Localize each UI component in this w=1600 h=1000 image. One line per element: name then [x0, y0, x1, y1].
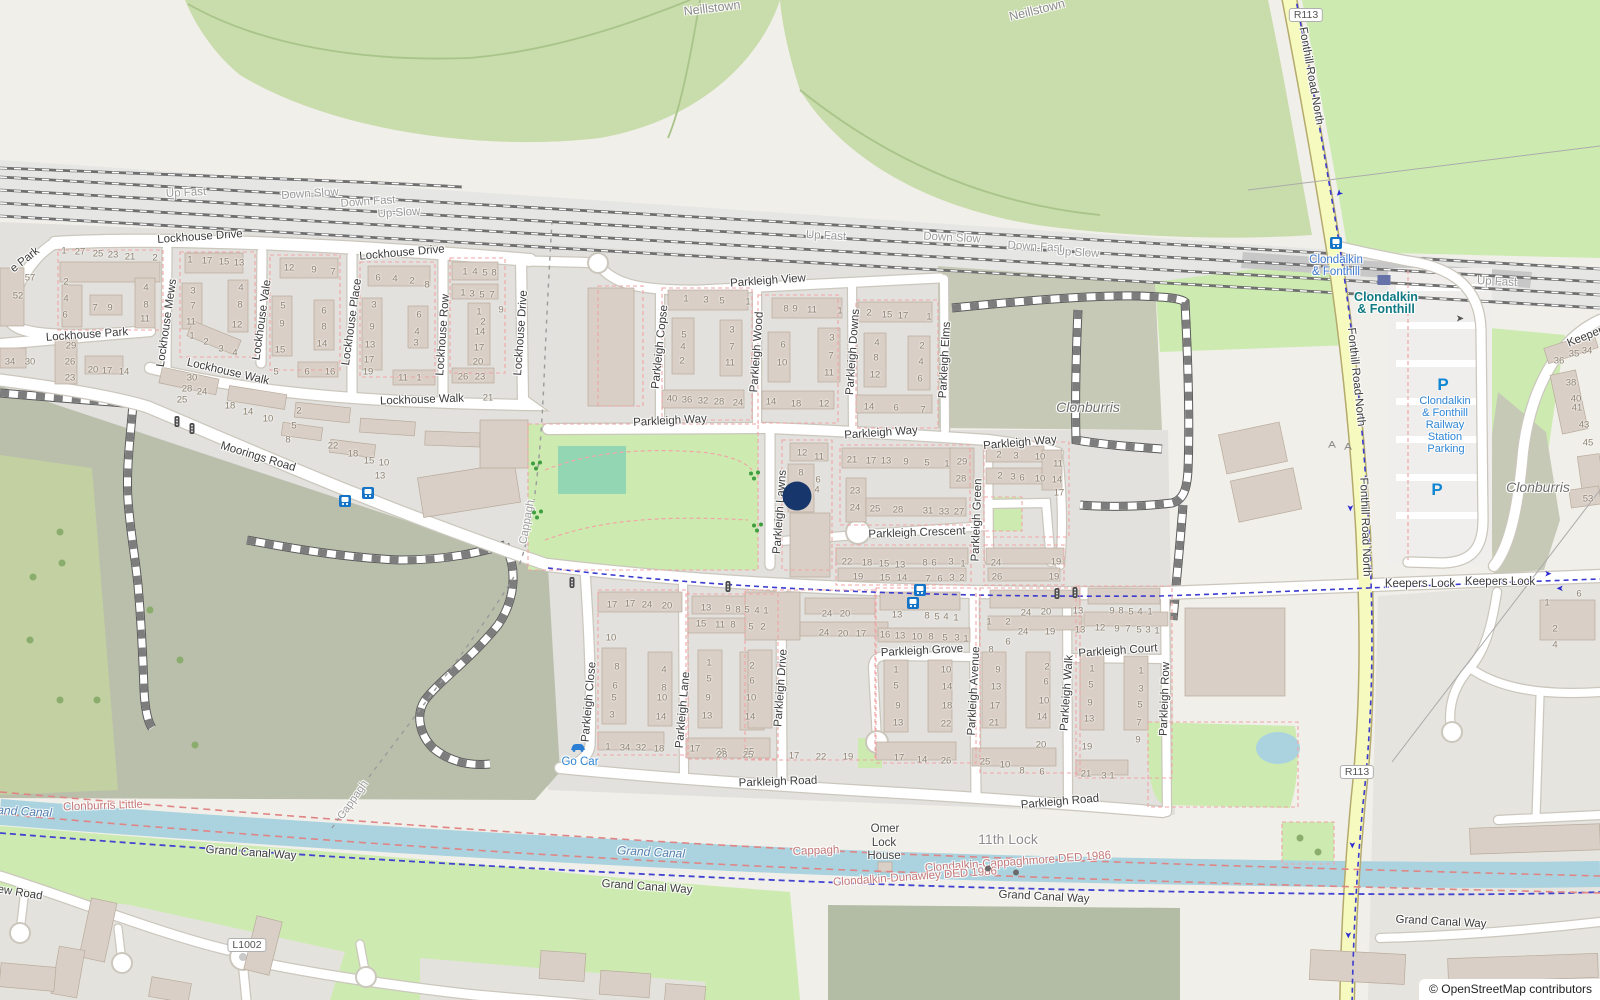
house-number: 10 [777, 358, 788, 369]
house-number: 22 [816, 752, 827, 763]
house-number: 6 [375, 273, 380, 284]
map-label: P [1431, 480, 1442, 500]
house-number: 9 [107, 303, 112, 314]
house-number: 6 [780, 340, 785, 351]
map-label: Omer [871, 823, 900, 835]
house-number: 5 [681, 330, 686, 341]
house-number: 20 [88, 365, 99, 376]
house-number: 24 [1021, 608, 1032, 619]
tree-icon [1296, 829, 1304, 847]
house-number: 8 [783, 304, 788, 315]
house-number: 17 [1054, 488, 1065, 499]
house-number: 4 [238, 283, 243, 294]
house-number: 5 [479, 290, 484, 301]
house-number: 4 [814, 485, 819, 496]
house-number: 3 [1013, 451, 1018, 462]
house-number: 3 [218, 344, 223, 355]
house-number: 13 [1073, 606, 1084, 617]
house-number: 27 [75, 247, 86, 258]
tree-icon [26, 631, 34, 649]
house-number: 10 [379, 458, 390, 469]
house-number: 24 [1018, 627, 1029, 638]
map-label: Station [1428, 431, 1462, 443]
house-number: 13 [991, 682, 1002, 693]
house-number: 21 [1081, 769, 1092, 780]
house-number: 17 [690, 744, 701, 755]
house-number: 34 [1582, 346, 1593, 357]
house-number: 8 [798, 468, 803, 479]
house-number: 5 [482, 268, 487, 279]
map-label: & Fonthill [1312, 266, 1360, 278]
house-number: 41 [1572, 403, 1583, 414]
house-number: 8 [491, 268, 496, 279]
house-number: 28 [182, 384, 193, 395]
house-number: 29 [957, 457, 968, 468]
map-label: Up Fast [166, 186, 207, 200]
house-number: 18 [862, 558, 873, 569]
house-number: 12 [870, 370, 881, 381]
map-label: Up Slow [1056, 246, 1099, 260]
house-number: 1 [1089, 664, 1094, 675]
house-number: 1 [944, 459, 949, 470]
house-number: 11 [807, 305, 817, 316]
house-number: 14 [1037, 712, 1048, 723]
house-number: 35 [1569, 349, 1580, 360]
house-number: 17 [856, 629, 867, 640]
house-number: 6 [321, 306, 326, 317]
house-number: 3 [1138, 684, 1143, 695]
house-number: 14 [745, 712, 756, 723]
signal-icon [175, 414, 180, 432]
house-number: 24 [197, 387, 208, 398]
gocar-icon [570, 739, 586, 757]
lockdot-icon [1013, 863, 1020, 881]
map-label: Railway [1426, 419, 1465, 431]
house-number: 9 [705, 693, 710, 704]
osm-link[interactable]: OpenStreetMap [1441, 982, 1526, 996]
house-number: 15 [882, 310, 893, 321]
house-number: 12 [1095, 623, 1106, 634]
house-number: 3 [1010, 472, 1015, 483]
house-number: 4 [918, 357, 923, 368]
map-label: Grand Canal [0, 802, 52, 820]
house-number: 3 [371, 300, 376, 311]
house-number: 32 [698, 396, 709, 407]
house-number: 13 [365, 340, 376, 351]
house-number: 5 [924, 458, 929, 469]
house-number: 14 [317, 339, 328, 350]
house-number: 10 [746, 693, 757, 704]
house-number: 7 [1125, 624, 1130, 635]
house-number: 20 [838, 629, 849, 640]
house-number: 10 [657, 693, 668, 704]
map-label: Clonburris [1506, 479, 1570, 495]
playground-icon [530, 508, 546, 527]
house-number: 11 [398, 373, 408, 384]
house-number: 18 [942, 701, 953, 712]
house-number: 13 [702, 711, 713, 722]
house-number: 6 [612, 681, 617, 692]
house-number: 1 [189, 331, 194, 342]
house-number: 7 [729, 342, 734, 353]
house-number: 18 [654, 744, 665, 755]
house-number: 1 [1154, 626, 1159, 637]
house-number: 4 [680, 342, 685, 353]
house-number: 28 [893, 505, 904, 516]
house-number: 5 [719, 296, 724, 307]
house-number: 1 [61, 246, 66, 257]
house-number: 25 [743, 750, 754, 761]
bus-stop-icon[interactable] [907, 596, 919, 614]
house-number: 5 [744, 605, 749, 616]
tree-icon [146, 601, 154, 619]
house-number: 2 [1552, 624, 1557, 635]
house-number: 11 [1053, 459, 1063, 470]
house-number: 5 [706, 674, 711, 685]
house-number: 17 [474, 343, 485, 354]
house-number: 9 [903, 457, 908, 468]
house-number: 15 [364, 456, 375, 467]
house-number: 13 [895, 560, 906, 571]
house-number: 14 [119, 367, 130, 378]
house-number: 8 [285, 435, 290, 446]
map-label: Cappagh [792, 844, 839, 858]
house-number: 23 [65, 373, 76, 384]
map-label: P [1437, 375, 1448, 395]
house-number: 34 [5, 357, 16, 368]
house-number: 3 [1101, 771, 1106, 782]
house-number: 17 [202, 256, 213, 267]
house-number: 12 [284, 263, 295, 274]
road-ref-badge: R113 [1340, 765, 1374, 779]
house-number: 8 [922, 558, 927, 569]
house-number: 2 [1005, 617, 1010, 628]
house-number: 14 [475, 327, 486, 338]
house-number: 13 [881, 456, 892, 467]
house-number: 5 [1128, 607, 1133, 618]
house-number: 11 [725, 358, 735, 369]
lockdot-icon [985, 859, 992, 877]
playground-icon [529, 459, 545, 478]
house-number: 19 [1051, 557, 1062, 568]
house-number: 8 [1118, 606, 1123, 617]
map-label: Go Car [561, 756, 598, 768]
playground-icon [750, 521, 766, 540]
house-number: 8 [321, 322, 326, 333]
house-number: 7 [1136, 718, 1141, 729]
house-number: 3 [703, 295, 708, 306]
house-number: 1 [837, 306, 842, 317]
house-number: 5 [291, 421, 296, 432]
house-number: 8 [237, 300, 242, 311]
house-number: 4 [943, 612, 948, 623]
house-number: 1 [460, 288, 465, 299]
house-number: 9 [995, 665, 1000, 676]
map-label: Up Fast [1477, 275, 1518, 289]
house-number: 25 [870, 504, 881, 515]
house-number: 9 [279, 319, 284, 330]
house-number: 7 [489, 290, 494, 301]
house-number: 18 [791, 399, 802, 410]
house-number: 22 [941, 719, 952, 730]
house-number: 11 [814, 452, 824, 463]
house-number: 22 [842, 557, 853, 568]
house-number: 1 [763, 606, 768, 617]
house-number: 20 [662, 601, 673, 612]
house-number: 24 [822, 609, 833, 620]
house-number: 3 [190, 286, 195, 297]
map-label: Keepers Lock [1385, 578, 1455, 590]
house-number: 5 [942, 633, 947, 644]
house-number: 13 [893, 718, 904, 729]
house-number: 13 [234, 258, 245, 269]
house-number: 30 [25, 357, 36, 368]
house-number: 1 [706, 658, 711, 669]
house-number: 2 [63, 277, 68, 288]
house-number: 6 [931, 558, 936, 569]
house-number: 5 [611, 693, 616, 704]
house-number: 28 [717, 750, 728, 761]
house-number: 8 [730, 620, 735, 631]
house-number: 21 [125, 252, 136, 263]
house-number: 4 [661, 665, 666, 676]
house-number: 6 [1043, 677, 1048, 688]
house-number: 17 [866, 456, 877, 467]
house-number: 13 [1075, 625, 1086, 636]
oneway-arrow-icon: ➤ [1556, 583, 1564, 594]
house-number: 19 [1045, 627, 1056, 638]
house-number: 17 [102, 366, 113, 377]
house-number: 17 [894, 753, 905, 764]
map-label: Lock [872, 837, 896, 849]
road-ref-badge: R113 [1289, 8, 1323, 22]
house-number: 5 [1088, 680, 1093, 691]
house-number: 1 [605, 742, 610, 753]
house-number: 1 [187, 255, 192, 266]
house-number: 22 [328, 441, 339, 452]
house-number: 24 [850, 503, 861, 514]
house-number: 4 [63, 294, 68, 305]
tree-icon [1314, 843, 1322, 861]
house-number: 1 [683, 294, 688, 305]
house-number: 11 [186, 317, 196, 328]
house-number: 1 [893, 665, 898, 676]
house-number: 14 [864, 402, 875, 413]
house-number: 28 [714, 397, 725, 408]
house-number: 2 [919, 341, 924, 352]
copyright-symbol: © [1429, 982, 1438, 996]
house-number: 3 [954, 633, 959, 644]
map-label: House [867, 850, 900, 862]
house-number: 2 [997, 471, 1002, 482]
house-number: 9 [369, 322, 374, 333]
attribution: © OpenStreetMap contributors [1419, 979, 1600, 1000]
house-number: 9 [1135, 735, 1140, 746]
house-number: 2 [996, 450, 1001, 461]
house-number: 45 [1583, 438, 1594, 449]
house-number: 1 [1544, 598, 1549, 609]
house-number: 17 [789, 751, 800, 762]
house-number: 4 [232, 348, 237, 359]
house-number: 23 [475, 372, 486, 383]
house-number: 27 [954, 507, 965, 518]
house-number: 40 [667, 394, 678, 405]
signal-icon [1073, 585, 1078, 603]
house-number: 2 [866, 308, 871, 319]
house-number: 9 [1114, 624, 1119, 635]
house-number: 9 [725, 604, 730, 615]
house-number: 9 [895, 701, 900, 712]
signal-icon [570, 575, 575, 593]
oneway-arrow-icon: ➤ [1343, 931, 1354, 939]
house-number: 24 [733, 398, 744, 409]
house-number: 18 [348, 449, 359, 460]
bus-stop-icon[interactable] [339, 494, 351, 512]
house-number: 13 [1084, 714, 1095, 725]
house-number: 14 [766, 397, 777, 408]
house-number: 14 [243, 407, 254, 418]
house-number: 3 [609, 710, 614, 721]
house-number: 1 [1109, 771, 1114, 782]
house-number: 8 [424, 280, 429, 291]
house-number: 2 [679, 356, 684, 367]
house-number: 16 [325, 367, 336, 378]
house-number: 20 [1036, 740, 1047, 751]
house-number: 30 [187, 373, 198, 384]
house-number: 19 [853, 572, 864, 583]
house-number: 14 [1052, 475, 1063, 486]
house-number: 5 [280, 301, 285, 312]
house-number: 8 [614, 662, 619, 673]
house-number: 6 [62, 310, 67, 321]
house-number: 6 [1039, 767, 1044, 778]
house-number: 21 [483, 393, 494, 404]
house-number: 1 [986, 617, 991, 628]
location-marker[interactable] [783, 482, 812, 511]
map-label: Clondalkin [1419, 395, 1470, 407]
house-number: 12 [797, 448, 808, 459]
house-number: 9 [1087, 698, 1092, 709]
map-label: & Fonthill [1422, 407, 1468, 419]
house-number: 33 [939, 507, 950, 518]
house-number: 36 [682, 395, 693, 406]
bus-stop-icon[interactable] [1330, 236, 1342, 254]
house-number: 10 [606, 633, 617, 644]
house-number: 20 [473, 357, 484, 368]
house-number: 10 [1035, 474, 1046, 485]
bus-stop-icon[interactable] [362, 486, 374, 504]
house-number: 8 [988, 645, 993, 656]
house-number: 23 [108, 250, 119, 261]
house-number: 2 [296, 406, 301, 417]
house-number: 17 [625, 599, 636, 610]
map-label: 11th Lock [978, 831, 1038, 847]
house-number: 19 [363, 367, 374, 378]
house-number: 9 [1109, 606, 1114, 617]
house-number: 7 [920, 405, 925, 416]
house-number: 34 [620, 743, 631, 754]
house-number: 8 [928, 632, 933, 643]
signal-icon [726, 579, 731, 597]
house-number: 8 [1019, 766, 1024, 777]
map-canvas[interactable]: Lockhouse DriveLockhouse DriveLockhouse … [0, 0, 1600, 1000]
tree-icon [56, 523, 64, 541]
house-number: 5 [1137, 700, 1142, 711]
house-number: 14 [897, 573, 908, 584]
house-number: 3 [469, 289, 474, 300]
house-number: 13 [375, 471, 386, 482]
house-number: 5 [893, 681, 898, 692]
house-number: 5 [934, 612, 939, 623]
map-label: Clondalkin [1309, 254, 1363, 266]
house-number: 19 [1082, 742, 1093, 753]
house-number: 38 [1566, 378, 1577, 389]
house-number: 16 [880, 630, 891, 641]
oneway-arrow-icon: ➤ [1345, 504, 1356, 512]
house-number: 25 [93, 249, 104, 260]
house-number: 25 [177, 395, 188, 406]
pylon-icon [1329, 435, 1336, 453]
house-number: 28 [956, 474, 967, 485]
house-number: 7 [92, 303, 97, 314]
house-number: 18 [225, 401, 236, 412]
house-number: 15 [879, 559, 890, 570]
house-number: 6 [1019, 473, 1024, 484]
house-number: 8 [143, 300, 148, 311]
house-number: 9 [498, 305, 503, 316]
tree-icon [176, 651, 184, 669]
house-number: 3 [949, 573, 954, 584]
tree-icon [93, 691, 101, 709]
house-number: 7 [828, 351, 833, 362]
map-label: & Fonthill [1357, 302, 1415, 316]
house-number: 4 [392, 274, 397, 285]
house-number: 7 [925, 574, 930, 585]
house-number: 3 [829, 333, 834, 344]
house-number: 9 [311, 265, 316, 276]
house-number: 2 [760, 622, 765, 633]
house-number: 6 [917, 374, 922, 385]
house-number: 11 [140, 314, 150, 325]
house-number: 4 [754, 606, 759, 617]
house-number: 1 [1138, 666, 1143, 677]
house-number: 53 [1583, 494, 1594, 505]
house-number: 19 [1049, 572, 1060, 583]
house-number: 4 [472, 267, 477, 278]
house-number: 17 [990, 701, 1001, 712]
tree-icon [56, 691, 64, 709]
tree-icon [29, 568, 37, 586]
house-number: 5 [748, 622, 753, 633]
house-number: 12 [819, 399, 830, 410]
house-number: 15 [696, 619, 707, 630]
house-number: 3 [948, 557, 953, 568]
house-number: 6 [1576, 589, 1581, 600]
attribution-suffix: contributors [1529, 982, 1592, 996]
house-number: 26 [458, 372, 469, 383]
house-number: 4 [414, 327, 419, 338]
house-number: 6 [937, 574, 942, 585]
house-number: 6 [304, 367, 309, 378]
house-number: 24 [642, 600, 653, 611]
house-number: 43 [1579, 420, 1590, 431]
house-number: 26 [941, 756, 952, 767]
house-number: 1 [416, 373, 421, 384]
house-number: 14 [917, 755, 928, 766]
house-number: 26 [65, 357, 76, 368]
house-number: 1 [960, 559, 965, 570]
tree-icon [191, 736, 199, 754]
